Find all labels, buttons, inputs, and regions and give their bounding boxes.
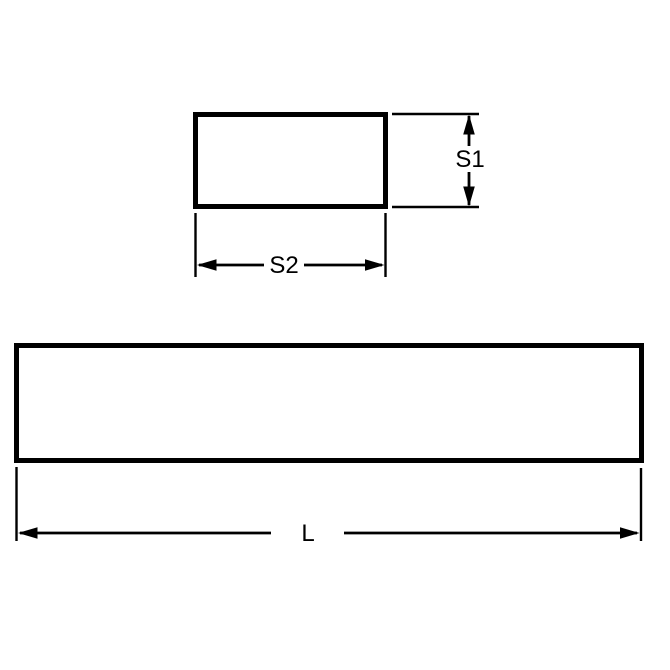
l-dimension-label: L bbox=[301, 520, 314, 547]
cross-section-view: S1 S2 bbox=[196, 114, 485, 279]
s2-arrow-left-icon bbox=[197, 259, 217, 271]
side-view: L bbox=[17, 346, 642, 548]
s1-arrow-up-icon bbox=[463, 115, 475, 135]
drawing-canvas: S1 S2 L bbox=[0, 0, 670, 670]
cross-section-outline bbox=[196, 115, 386, 207]
dimension-l: L bbox=[17, 467, 642, 547]
s1-arrow-down-icon bbox=[463, 187, 475, 207]
l-arrow-right-icon bbox=[620, 527, 640, 539]
s2-arrow-right-icon bbox=[365, 259, 385, 271]
l-arrow-left-icon bbox=[18, 527, 38, 539]
technical-drawing: S1 S2 L bbox=[0, 0, 670, 670]
side-view-outline bbox=[17, 346, 642, 461]
s2-dimension-label: S2 bbox=[269, 252, 298, 279]
dimension-s2: S2 bbox=[196, 213, 386, 279]
dimension-s1: S1 bbox=[392, 114, 485, 207]
s1-dimension-label: S1 bbox=[455, 146, 484, 173]
